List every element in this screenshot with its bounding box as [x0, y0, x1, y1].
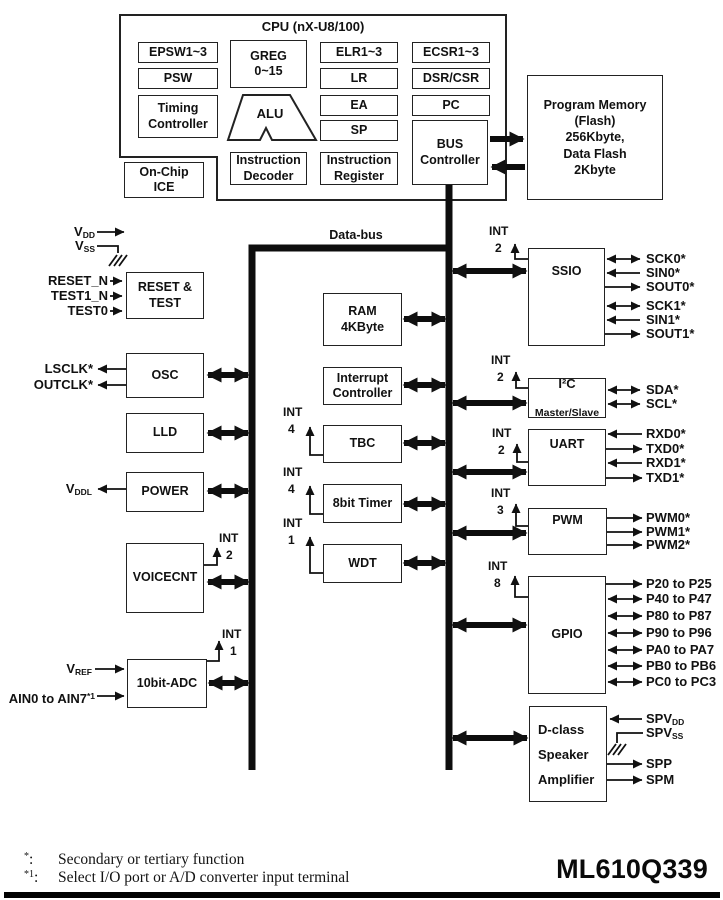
cpu-block-alu-label: ALU: [240, 107, 300, 121]
signal-label-p20-p25: P20 to P25: [646, 577, 712, 591]
osc-block: OSC: [126, 353, 204, 398]
cpu-block-ea: EA: [320, 95, 398, 116]
signal-label-sck0: SCK0*: [646, 252, 686, 266]
i2c-int-count: 2: [497, 371, 504, 384]
ssio-block: SSIO: [528, 248, 605, 346]
signal-label-rxd1: RXD1*: [646, 456, 686, 470]
bottom-rule: [4, 892, 720, 898]
reset-test-block: RESET & TEST: [126, 272, 204, 319]
cpu-block-timing-controller: Timing Controller: [138, 95, 218, 138]
signal-label-sout0: SOUT0*: [646, 280, 694, 294]
signal-label-rxd0: RXD0*: [646, 427, 686, 441]
on-chip-ice-block: On-Chip ICE: [124, 162, 204, 198]
right-pin-wires: [605, 259, 643, 780]
pwm-block: PWM: [528, 508, 607, 555]
voicecnt-int-label: INT: [219, 532, 238, 545]
gpio-block: GPIO: [528, 576, 606, 694]
vss-pin-label: VSS: [75, 239, 95, 256]
i2c-block-title: I²C: [535, 376, 599, 392]
signal-label-p80-p87: P80 to P87: [646, 609, 712, 623]
cpu-block-elr: ELR1~3: [320, 42, 398, 63]
signal-label-sout1: SOUT1*: [646, 327, 694, 341]
signal-label-scl: SCL*: [646, 397, 677, 411]
signal-label-p40-p47: P40 to P47: [646, 592, 712, 606]
i2c-block-subtitle: Master/Slave: [535, 407, 599, 420]
footnote-io-port-select: *1:Select I/O port or A/D converter inpu…: [24, 869, 349, 887]
signal-label-pa0-pa7: PA0 to PA7: [646, 643, 714, 657]
cpu-block-sp: SP: [320, 120, 398, 141]
8bit-timer-int-count: 4: [288, 483, 295, 496]
cpu-block-instruction-register: Instruction Register: [320, 152, 398, 185]
cpu-block-lr: LR: [320, 68, 398, 89]
cpu-title: CPU (nX-U8/100): [120, 20, 506, 34]
ain-pin-label: AIN0 to AIN7*1: [9, 689, 95, 706]
adc-block: 10bit-ADC: [127, 659, 207, 708]
adc-int-label: INT: [222, 628, 241, 641]
tbc-int-count: 4: [288, 423, 295, 436]
vss-ground-symbol: [109, 255, 127, 266]
signal-label-sck1: SCK1*: [646, 299, 686, 313]
signal-label-sin1: SIN1*: [646, 313, 680, 327]
power-block: POWER: [126, 472, 204, 512]
program-memory-block: Program Memory (Flash) 256Kbyte, Data Fl…: [527, 75, 663, 200]
gpio-int-label: INT: [488, 560, 507, 573]
pwm-int-count: 3: [497, 504, 504, 517]
signal-label-spm: SPM: [646, 773, 674, 787]
test0-pin-label: TEST0: [68, 304, 108, 318]
reset-n-pin-label: RESET_N: [48, 274, 108, 288]
adc-int-count: 1: [230, 645, 237, 658]
signal-label-txd1: TXD1*: [646, 471, 684, 485]
tbc-int-label: INT: [283, 406, 302, 419]
cpu-block-dsr-csr: DSR/CSR: [412, 68, 490, 89]
vddl-pin-label: VDDL: [66, 482, 92, 499]
8bit-timer-int-label: INT: [283, 466, 302, 479]
wdt-block: WDT: [323, 544, 402, 583]
uart-int-count: 2: [498, 444, 505, 457]
ssio-int-count: 2: [495, 242, 502, 255]
vref-pin-label: VREF: [66, 662, 92, 679]
product-name: ML610Q339: [540, 854, 708, 885]
cpu-block-ecsr: ECSR1~3: [412, 42, 490, 63]
uart-block: UART: [528, 429, 606, 486]
outclk-pin-label: OUTCLK*: [34, 378, 93, 392]
footnote-secondary-function: *:Secondary or tertiary function: [24, 851, 244, 869]
cpu-block-instruction-decoder: Instruction Decoder: [230, 152, 307, 185]
cpu-block-bus-controller: BUS Controller: [412, 120, 488, 185]
signal-label-sda: SDA*: [646, 383, 679, 397]
lld-block: LLD: [126, 413, 204, 453]
interrupt-controller-block: Interrupt Controller: [323, 367, 402, 405]
signal-label-pwm0: PWM0*: [646, 511, 690, 525]
d-class-speaker-amplifier-block: D-class Speaker Amplifier: [529, 706, 607, 802]
pwm-int-label: INT: [491, 487, 510, 500]
wdt-int-label: INT: [283, 517, 302, 530]
signal-label-sin0: SIN0*: [646, 266, 680, 280]
gpio-int-count: 8: [494, 577, 501, 590]
ram-block: RAM 4KByte: [323, 293, 402, 346]
signal-label-pwm2: PWM2*: [646, 538, 690, 552]
8bit-timer-block: 8bit Timer: [323, 484, 402, 523]
voicecnt-int-count: 2: [226, 549, 233, 562]
signal-label-p90-p96: P90 to P96: [646, 626, 712, 640]
uart-int-label: INT: [492, 427, 511, 440]
cpu-block-epsw: EPSW1~3: [138, 42, 218, 63]
data-bus-label: Data-bus: [320, 228, 392, 242]
test1-n-pin-label: TEST1_N: [51, 289, 108, 303]
lsclk-pin-label: LSCLK*: [45, 362, 93, 376]
i2c-int-label: INT: [491, 354, 510, 367]
cpu-block-greg: GREG 0~15: [230, 40, 307, 88]
data-bus-line: [252, 185, 449, 770]
wdt-int-count: 1: [288, 534, 295, 547]
tbc-block: TBC: [323, 425, 402, 463]
cpu-block-psw: PSW: [138, 68, 218, 89]
ssio-int-label: INT: [489, 225, 508, 238]
signal-label-pc0-pc3: PC0 to PC3: [646, 675, 716, 689]
spvss-ground-symbol: [608, 744, 626, 755]
voicecnt-block: VOICECNT: [126, 543, 204, 613]
signal-label-spp: SPP: [646, 757, 672, 771]
spvss-pin-label: SPVSS: [646, 726, 683, 743]
block-diagram-page: CPU (nX-U8/100) EPSW1~3 PSW Timing Contr…: [0, 0, 723, 900]
signal-label-pb0-pb6: PB0 to PB6: [646, 659, 716, 673]
signal-label-txd0: TXD0*: [646, 442, 684, 456]
cpu-block-pc: PC: [412, 95, 490, 116]
i2c-block: I²C Master/Slave: [528, 378, 606, 418]
